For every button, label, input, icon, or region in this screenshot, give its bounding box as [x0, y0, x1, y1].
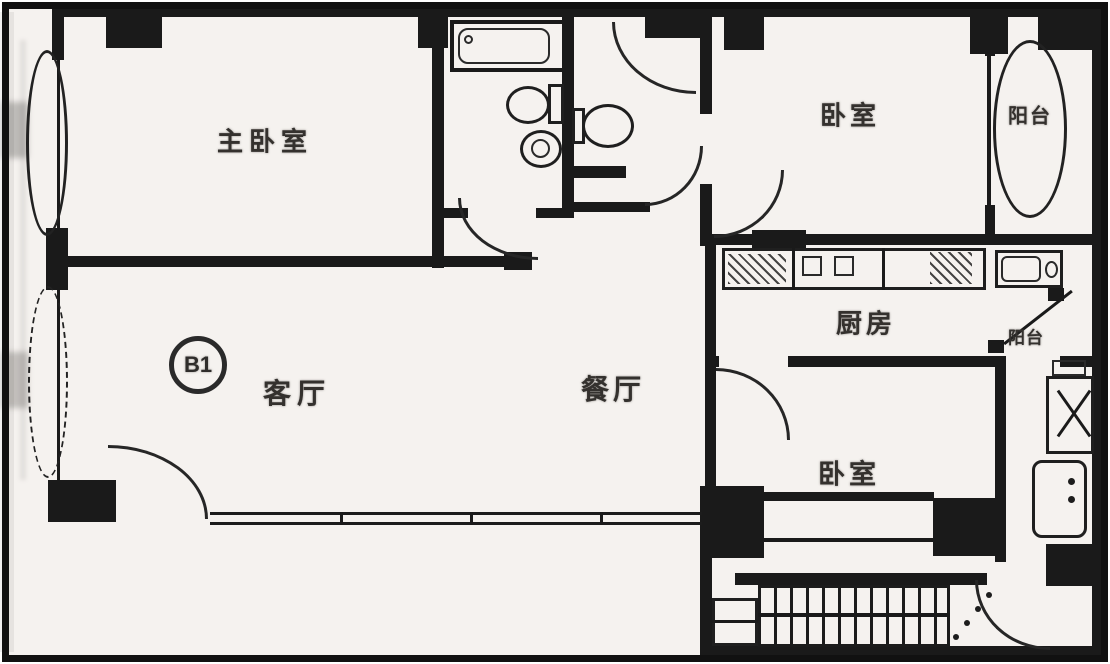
- toilet-2-tank: [572, 108, 585, 144]
- counter-hatch: [930, 252, 972, 284]
- washer-knob: [1068, 478, 1075, 485]
- window-mullion: [340, 512, 343, 525]
- toilet-2: [582, 104, 634, 148]
- stair-arrow-dot: [975, 606, 981, 612]
- stove-burner: [802, 256, 822, 276]
- window-mullion: [600, 512, 603, 525]
- room-label-living-room: 客厅: [263, 372, 331, 412]
- bathtub-drain: [464, 35, 473, 44]
- wall-stairhall-top: [735, 573, 987, 585]
- counter-divider: [792, 248, 795, 290]
- toilet-1-tank: [548, 84, 564, 124]
- wall-bedroom-tr-right: [985, 8, 995, 56]
- room-label-dining-room: 餐厅: [581, 368, 645, 408]
- counter-divider: [882, 248, 885, 290]
- kitchen-sink-tap: [1045, 261, 1058, 278]
- wall-bath2-bottom: [562, 202, 650, 212]
- bay-window-left-bottom: [28, 286, 68, 478]
- wall-kitchen-bottom: [788, 356, 1002, 367]
- washer: [1032, 460, 1087, 538]
- window-mullion: [470, 512, 473, 525]
- room-label-balcony-service: 阳台: [1008, 324, 1044, 349]
- counter-hatch: [728, 254, 786, 284]
- wall-top: [52, 8, 1100, 17]
- room-label-balcony-right: 阳台: [1008, 100, 1052, 129]
- room-label-master-bedroom: 主卧室: [217, 122, 313, 159]
- door-stop: [988, 340, 1004, 353]
- cabinet-unit: [1046, 544, 1094, 586]
- room-label-bedroom-top-right: 卧室: [820, 96, 880, 133]
- wall-pier: [52, 8, 64, 60]
- wall-bedroom-br-bottom: [764, 492, 934, 501]
- room-label-kitchen: 厨房: [836, 304, 896, 341]
- bay-window-left-top: [26, 50, 68, 236]
- unit-badge: B1: [169, 336, 227, 394]
- wall-master-living: [56, 256, 526, 267]
- wall-pier: [752, 230, 806, 248]
- kitchen-sink-basin: [1001, 256, 1041, 282]
- wall-master-right: [432, 8, 444, 268]
- washer-knob: [1068, 496, 1075, 503]
- window-line: [987, 50, 991, 210]
- stair-arrow-dot: [953, 634, 959, 640]
- wall-pier: [1038, 8, 1100, 50]
- wall-bedroom-tr-left: [700, 8, 712, 114]
- room-label-bedroom-bottom-right: 卧室: [818, 453, 880, 492]
- wall-pier: [933, 498, 997, 556]
- stair-arrow-dot: [964, 620, 970, 626]
- wall-bedroom-tr-right: [985, 205, 995, 243]
- stair-landing-line: [712, 620, 758, 623]
- wall-pier: [106, 8, 162, 48]
- bay-window-right: [993, 40, 1067, 218]
- stair-rail: [758, 613, 950, 617]
- stair-arrow-dot: [986, 592, 992, 598]
- wall-stairhall-left: [700, 520, 712, 658]
- unit-badge-label: B1: [184, 352, 212, 378]
- wall-pier: [48, 480, 116, 522]
- window-line: [764, 538, 934, 542]
- toilet-1: [506, 86, 550, 124]
- bathtub-inner: [458, 28, 550, 64]
- bath-threshold: [572, 166, 626, 178]
- window-living-bottom: [210, 512, 702, 525]
- stove-burner: [834, 256, 854, 276]
- wall-dining-kitchen: [705, 240, 716, 370]
- heater-vent: [1052, 360, 1086, 376]
- floor-plan: 主卧室 卧室 阳台 厨房 阳台 客厅 餐厅 卧室 B1: [0, 0, 1110, 664]
- basin-1-drain: [531, 139, 550, 158]
- door-stop: [1048, 288, 1064, 301]
- wall-pier: [724, 8, 764, 50]
